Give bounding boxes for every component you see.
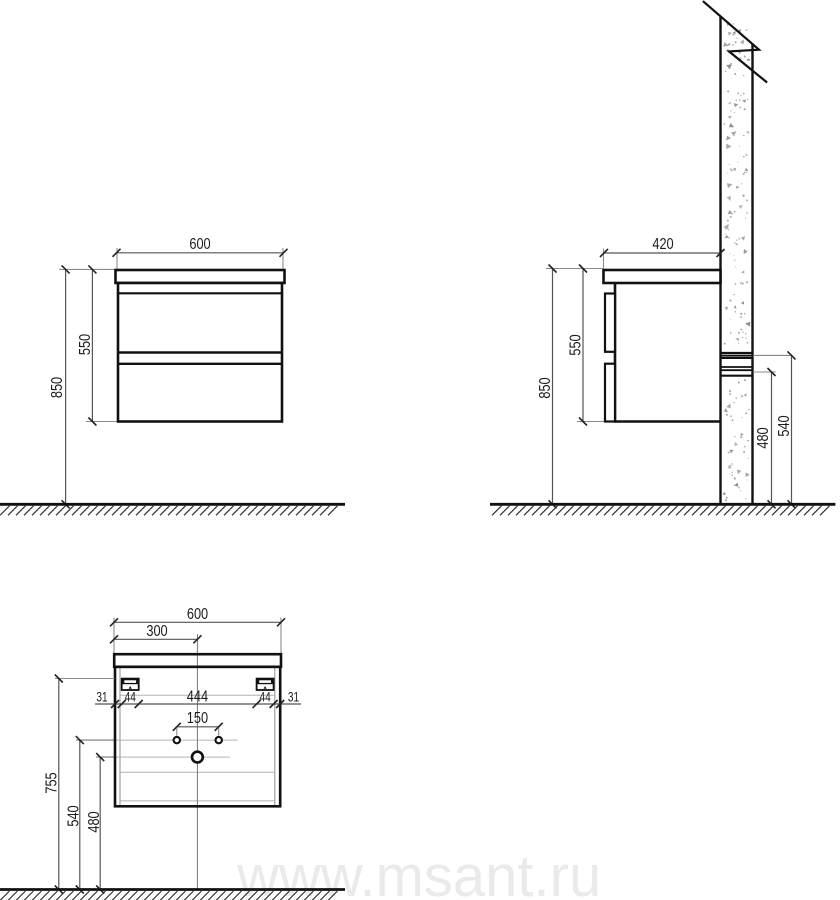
svg-text:540: 540: [776, 415, 794, 436]
svg-text:31: 31: [288, 689, 299, 705]
svg-text:44: 44: [259, 689, 270, 705]
svg-text:300: 300: [146, 623, 167, 641]
svg-text:850: 850: [49, 377, 67, 398]
svg-text:600: 600: [187, 606, 208, 624]
svg-text:444: 444: [187, 688, 208, 706]
svg-text:480: 480: [86, 811, 104, 832]
svg-text:755: 755: [43, 772, 61, 793]
svg-text:420: 420: [652, 236, 673, 254]
svg-text:31: 31: [96, 689, 107, 705]
svg-text:www.msant.ru: www.msant.ru: [236, 844, 601, 900]
svg-text:600: 600: [189, 236, 210, 254]
svg-text:44: 44: [125, 689, 136, 705]
svg-text:550: 550: [77, 334, 95, 355]
svg-text:480: 480: [755, 427, 773, 448]
svg-text:550: 550: [567, 334, 585, 355]
svg-text:150: 150: [187, 710, 208, 728]
svg-text:540: 540: [65, 805, 83, 826]
svg-text:850: 850: [537, 377, 555, 398]
